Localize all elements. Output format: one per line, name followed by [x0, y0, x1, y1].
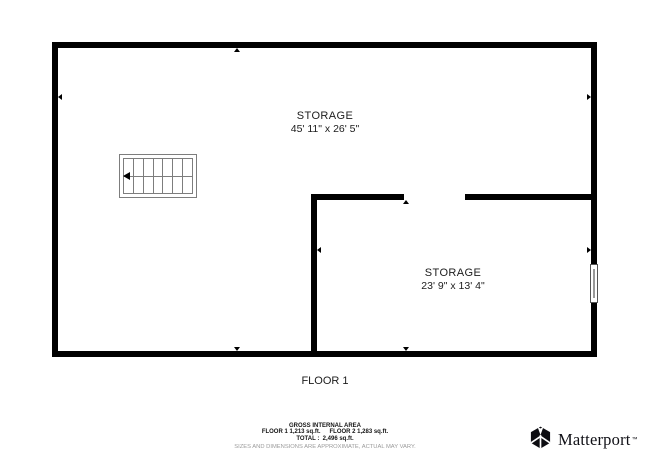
dimension-arrow-icon [587, 94, 591, 100]
dimension-arrow-icon [403, 347, 409, 351]
wall-bottom [52, 351, 597, 357]
matterport-logo-icon [528, 425, 553, 455]
room-label-storage-2: STORAGE 23' 9" x 13' 4" [353, 267, 553, 293]
matterport-logo: Matterport ™ [528, 425, 638, 455]
wall-right [591, 42, 597, 357]
stairs-icon [119, 154, 197, 198]
area-summary: GROSS INTERNAL AREA FLOOR 1 1,213 sq.ft.… [125, 423, 525, 450]
floor-plan-page: STORAGE 45' 11" x 26' 5" STORAGE 23' 9" … [0, 0, 650, 460]
room-name: STORAGE [225, 110, 425, 123]
window-symbol [590, 264, 598, 303]
interior-wall-horizontal-right [465, 194, 597, 200]
stairs-center-line [124, 176, 192, 177]
dimension-arrow-icon [403, 200, 409, 204]
room-name: STORAGE [353, 267, 553, 280]
floor-label: FLOOR 1 [225, 375, 425, 387]
dimension-arrow-icon [58, 94, 62, 100]
total-area: TOTAL : 2,496 sq.ft. [125, 436, 525, 442]
floor1-area: FLOOR 1 1,213 sq.ft. [262, 429, 321, 435]
trademark-symbol: ™ [632, 437, 638, 443]
stairs-direction-arrow-icon [123, 172, 130, 180]
dimension-arrow-icon [234, 347, 240, 351]
room-dimensions: 45' 11" x 26' 5" [225, 123, 425, 136]
matterport-logo-text: Matterport [558, 430, 631, 450]
interior-wall-horizontal-left [311, 194, 404, 200]
dimension-arrow-icon [234, 48, 240, 52]
room-label-storage-1: STORAGE 45' 11" x 26' 5" [225, 110, 425, 136]
window-pane [593, 269, 595, 298]
dimension-arrow-icon [317, 247, 321, 253]
floor2-area: FLOOR 2 1,283 sq.ft. [330, 429, 389, 435]
interior-wall-vertical [311, 194, 317, 357]
disclaimer-text: SIZES AND DIMENSIONS ARE APPROXIMATE, AC… [125, 444, 525, 450]
room-dimensions: 23' 9" x 13' 4" [353, 280, 553, 293]
wall-left [52, 42, 58, 357]
wall-top [52, 42, 597, 48]
dimension-arrow-icon [587, 247, 591, 253]
